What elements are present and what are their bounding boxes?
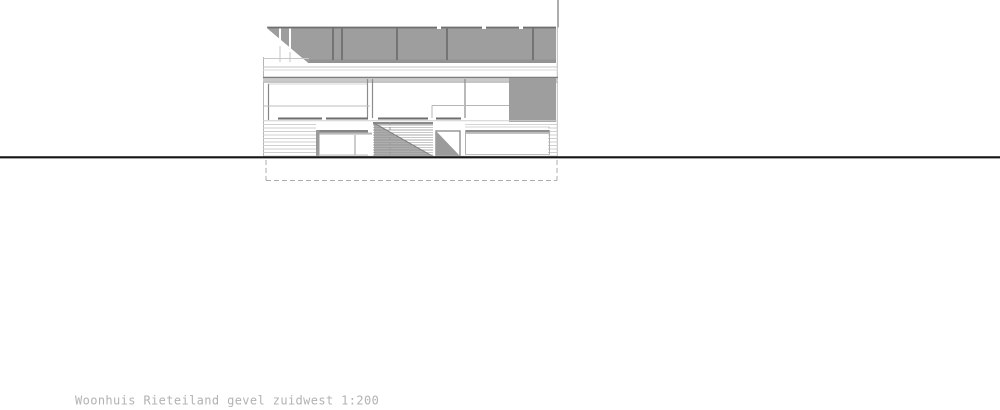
drawing-caption: Woonhuis Rieteiland gevel zuidwest 1:200: [75, 394, 379, 408]
accent-panel: [509, 78, 556, 122]
shadow-mass-bottom-band: [309, 60, 556, 64]
roof-parapet-shadow: [267, 0, 558, 63]
stair-top-band: [373, 122, 433, 124]
window-mullions: [269, 79, 466, 120]
upper-floor-windows: [263, 78, 558, 122]
shadow-mass: [267, 28, 556, 64]
elevation-drawing: Woonhuis Rieteiland gevel zuidwest 1:200: [0, 0, 1000, 410]
drawing-sheet: Woonhuis Rieteiland gevel zuidwest 1:200: [0, 0, 1000, 410]
basement-outline: [266, 160, 557, 181]
balustrade-rails: [264, 106, 509, 119]
ground-window-right: [465, 125, 550, 156]
ground-floor: [263, 122, 558, 157]
staircase: [373, 122, 460, 157]
cladding-lines-left: [263, 125, 316, 157]
ground-window-left: [316, 130, 372, 156]
